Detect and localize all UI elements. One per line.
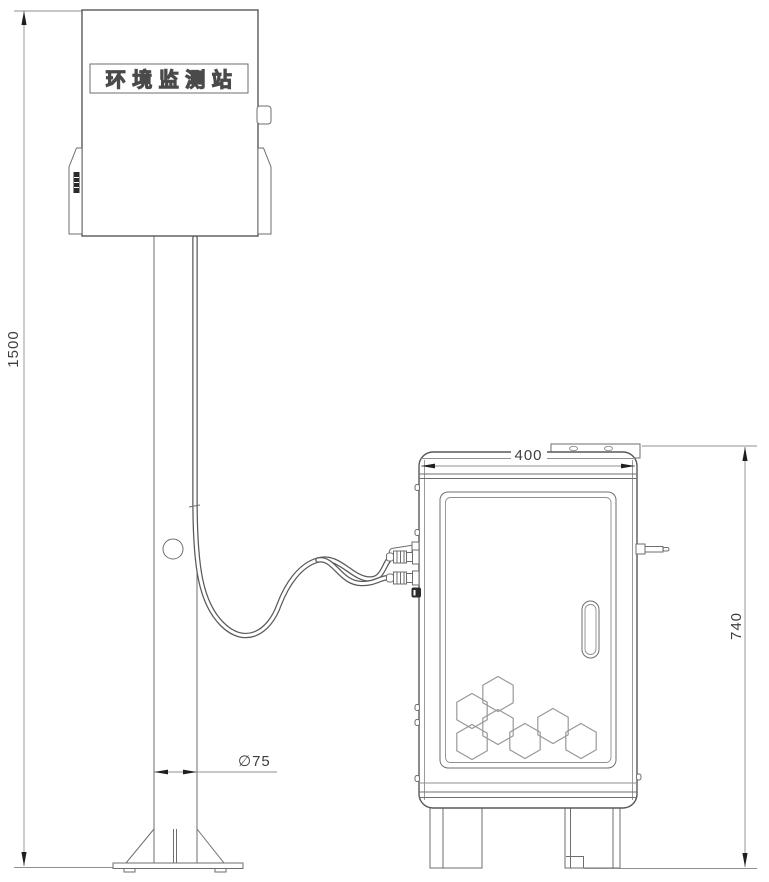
cable-gland-connectors — [387, 542, 422, 598]
head-box-side-connector — [257, 106, 271, 124]
dimension-pole-diameter: ∅75 — [154, 753, 277, 774]
dimension-text-75: ∅75 — [238, 753, 271, 770]
dimension-text-1500: 1500 — [5, 330, 22, 367]
side-port — [412, 588, 422, 598]
sensor-head-box: 环境监测站 — [69, 10, 271, 236]
gland-flange — [413, 550, 420, 564]
arrow-down-icon — [742, 853, 747, 867]
base-pad-right — [215, 869, 226, 873]
rod-shaft — [645, 547, 663, 553]
cabinet-feet — [430, 808, 620, 868]
connection-cable — [189, 238, 392, 636]
mounting-pole — [113, 236, 243, 872]
hinge-bump — [415, 485, 420, 491]
right-sensor-rod — [636, 544, 669, 554]
base-plate — [113, 863, 243, 869]
equipment-cabinet: 400 — [387, 444, 670, 868]
gland-tip — [387, 574, 394, 582]
technical-drawing-page: 1500 环境监测站 — [0, 0, 769, 882]
base-pad-left — [124, 869, 135, 873]
arrow-right-icon — [183, 770, 197, 775]
gland-ring — [407, 553, 413, 562]
gusset-right — [197, 829, 224, 863]
rod-cap — [663, 548, 669, 552]
rod-base — [636, 544, 645, 554]
right-edge-bump — [637, 774, 642, 780]
gland-ring — [407, 574, 413, 583]
head-box-body — [82, 10, 258, 236]
hinge-bump — [415, 705, 420, 711]
cabinet-body — [419, 452, 637, 808]
base-rib — [174, 829, 177, 863]
arrow-up-icon — [742, 447, 747, 461]
arrow-up-icon — [21, 11, 26, 25]
dimension-text-740: 740 — [728, 612, 745, 640]
head-box-right-bracket — [258, 148, 271, 234]
gusset-left — [126, 829, 154, 863]
environment-station-drawing: 1500 环境监测站 — [0, 0, 769, 882]
hinge-bump — [415, 720, 420, 726]
foot-right — [565, 808, 620, 868]
pole-cable-hole — [163, 539, 183, 559]
gland-connector-lower — [387, 571, 420, 585]
hinge-bump — [415, 776, 420, 782]
station-name-text: 环境监测站 — [106, 68, 239, 92]
hinge-bump — [415, 530, 420, 536]
arrow-left-icon — [154, 770, 168, 775]
gland-flange — [413, 571, 420, 585]
foot-left — [430, 808, 482, 868]
side-port-slot — [414, 590, 416, 596]
gland-tip — [387, 553, 394, 561]
arrow-down-icon — [21, 852, 26, 866]
dimension-text-400: 400 — [514, 447, 542, 464]
